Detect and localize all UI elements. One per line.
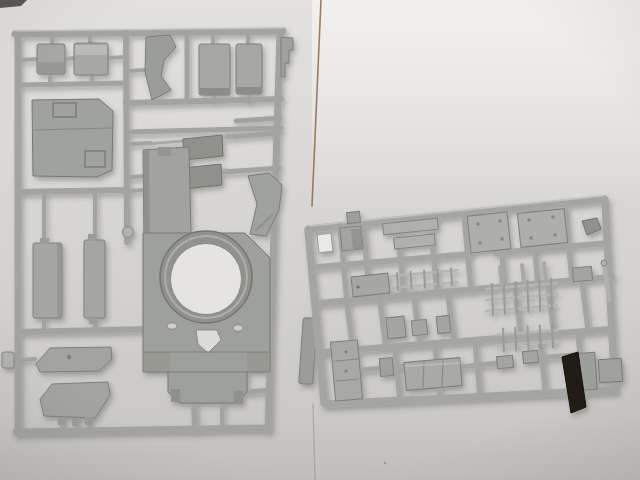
photo-vignette xyxy=(0,0,640,480)
overlay-layer xyxy=(0,0,640,480)
sprue-photo-canvas xyxy=(0,0,640,480)
photo-of-model-kit-sprues xyxy=(0,0,640,480)
